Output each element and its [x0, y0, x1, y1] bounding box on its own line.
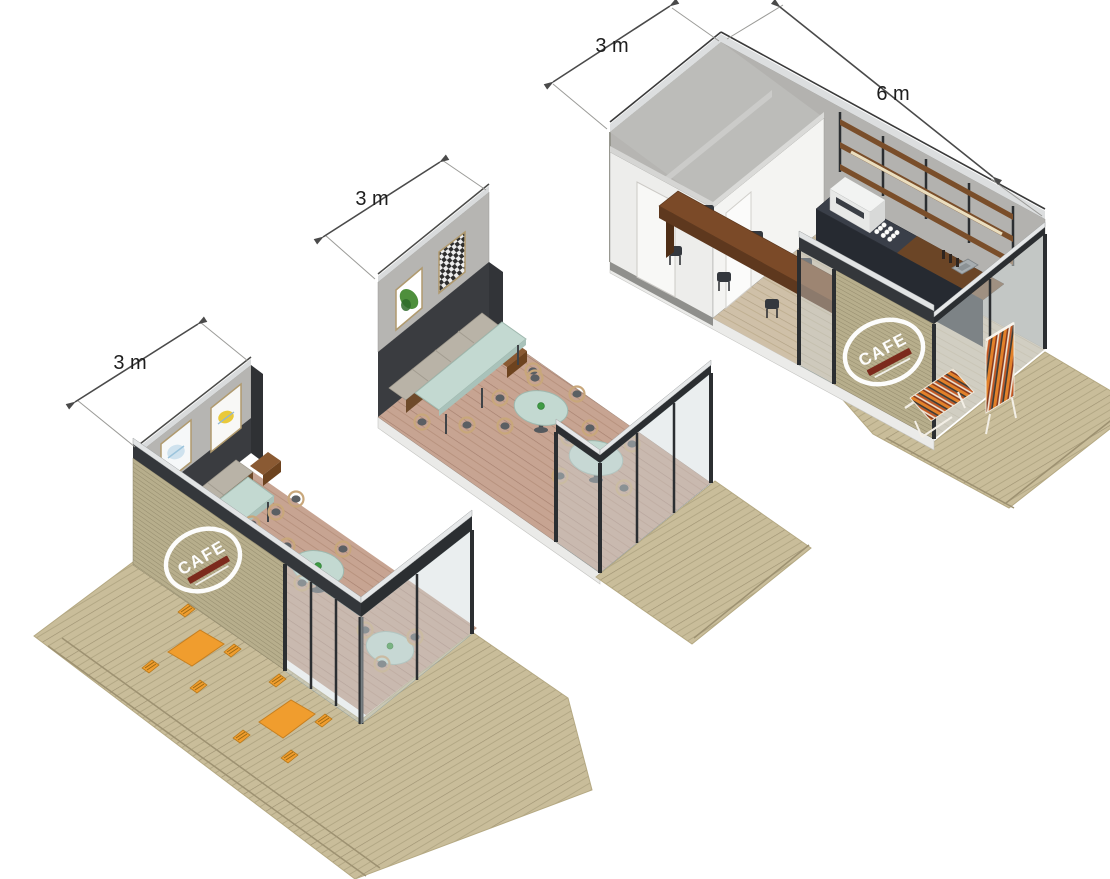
dimension-label: 3 m	[113, 352, 146, 374]
render-canvas: CAFE	[0, 0, 1110, 879]
dimension-label: 3 m	[355, 188, 388, 210]
dimension-label: 3 m	[595, 35, 628, 57]
wall-return	[251, 365, 263, 462]
dimension-label: 6 m	[876, 83, 909, 105]
glass-panel	[799, 250, 834, 384]
green-cup	[538, 403, 545, 410]
isometric-cafe-render: CAFE	[0, 0, 1110, 879]
glass-walls-front	[799, 250, 834, 384]
